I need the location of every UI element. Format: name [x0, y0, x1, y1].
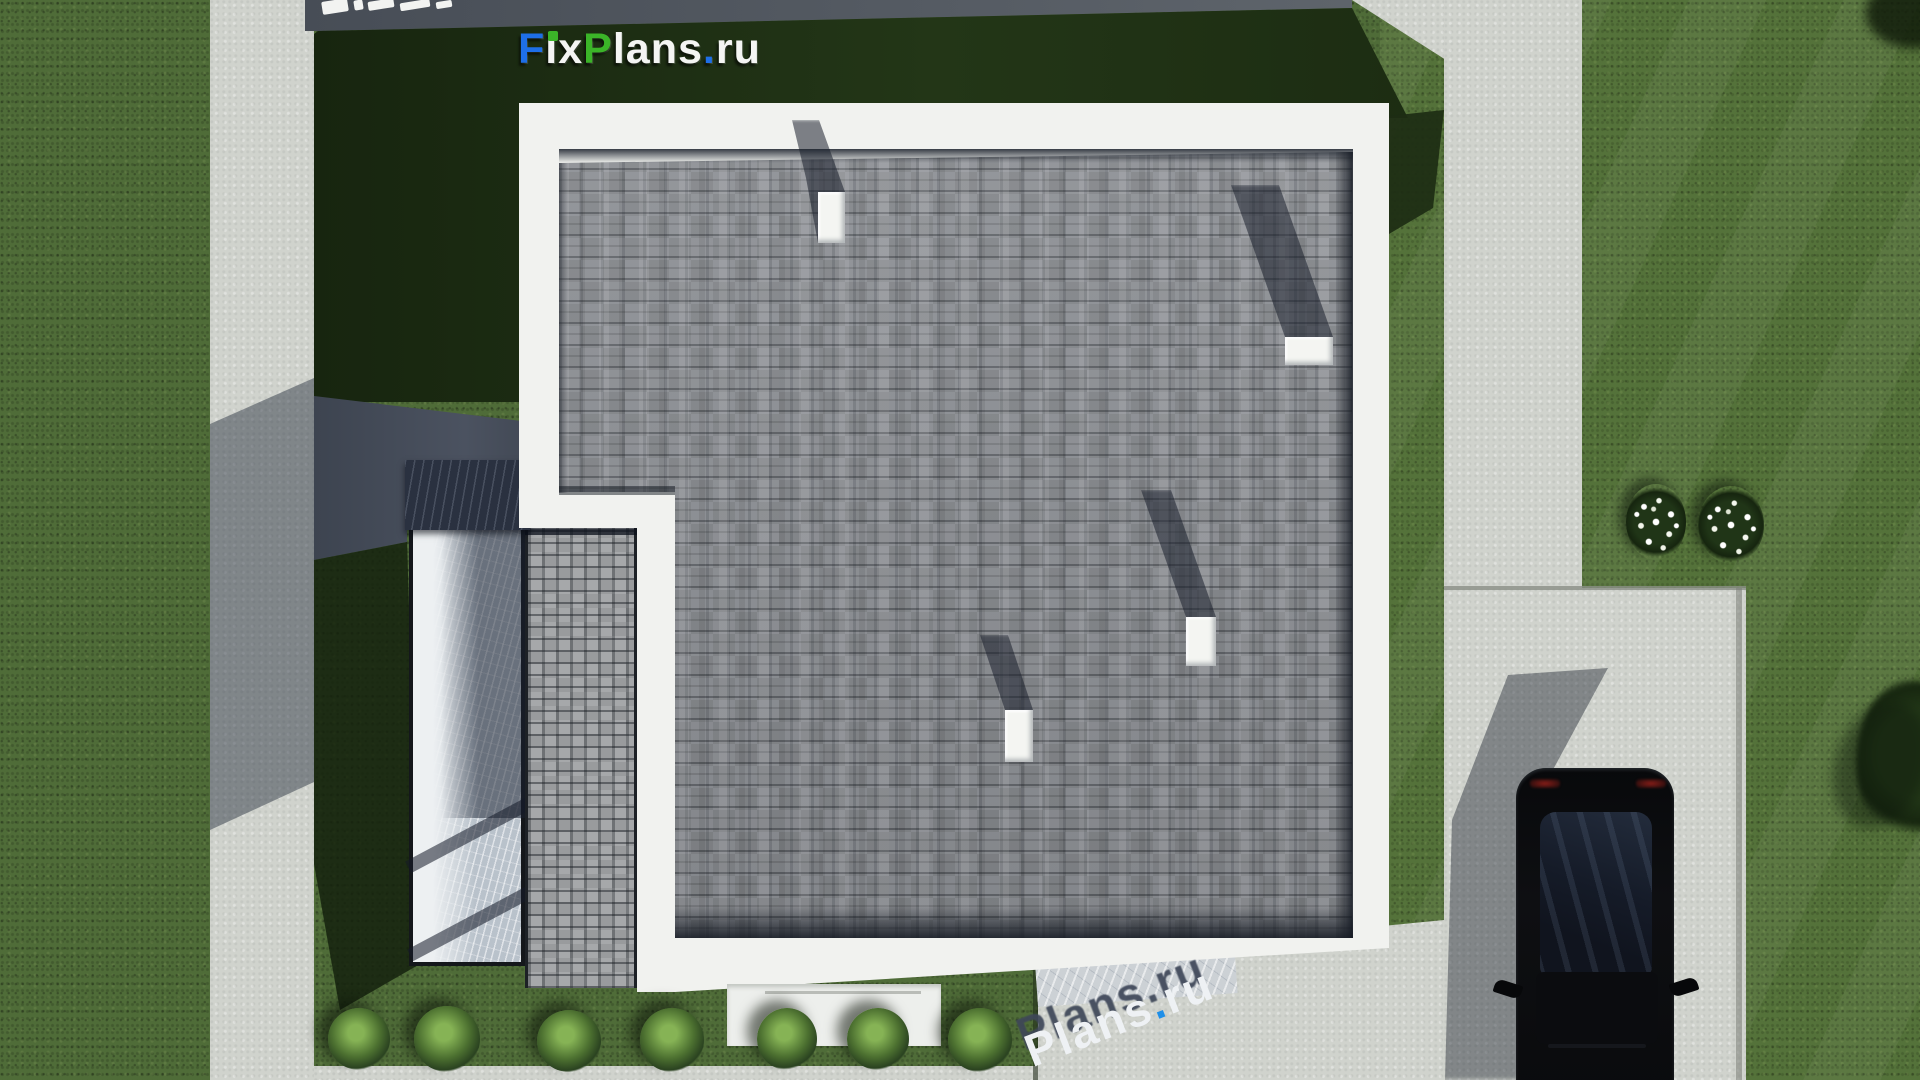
bush-1	[328, 1008, 390, 1070]
render-canvas: Plans.ru Plans.ru FixPlans.ru	[0, 0, 1920, 1080]
terrace-shadow-overlay	[441, 518, 525, 818]
chimney-3	[1005, 710, 1033, 762]
walkway-right	[1444, 0, 1582, 592]
logo-part-ru: ru	[716, 25, 761, 73]
chimney-1	[818, 192, 845, 243]
brand-logo: FixPlans.ru	[518, 28, 761, 71]
bush-2	[414, 1006, 480, 1072]
roof-edge-shadow-right	[1336, 152, 1353, 938]
logo-part-F: F	[518, 25, 545, 73]
roof-shingles	[559, 150, 1353, 940]
roof-edge-shadow-left	[559, 163, 568, 493]
lawn-shadow-wedge	[314, 540, 424, 1015]
logo-part-x: x	[558, 25, 583, 73]
pergola-beam	[405, 460, 530, 530]
car-taillight-left	[1530, 779, 1560, 788]
bush-5	[757, 1008, 817, 1070]
bush-6	[847, 1008, 909, 1070]
path-shadow-overlay	[210, 378, 314, 830]
logo-part-dot: .	[703, 25, 716, 73]
bush-3	[537, 1010, 601, 1072]
roof-edge-shadow-bottom	[675, 906, 1353, 938]
car-taillight-right	[1636, 779, 1666, 788]
logo-part-P: P	[583, 25, 613, 73]
flower-bed-2	[1698, 486, 1764, 564]
car-front-line	[1548, 1044, 1646, 1048]
roof-edge-shadow-step	[559, 486, 675, 495]
logo-i-dot	[548, 31, 558, 41]
car-rear-glass	[1540, 812, 1652, 977]
porch-step-line	[765, 991, 921, 994]
pad-edge-line	[1736, 588, 1742, 1080]
chimney-2	[1285, 337, 1333, 365]
logo-part-lans: lans	[613, 25, 703, 73]
pad-seam-line	[1444, 586, 1746, 590]
bush-4	[640, 1008, 704, 1072]
roof-edge-shadow-top	[559, 149, 1353, 163]
car-roof-trunk	[1536, 972, 1658, 1044]
chimney-4	[1186, 617, 1216, 666]
watermark-bottom: Plans.ru Plans.ru	[1000, 950, 1400, 1080]
flower-bed-1	[1626, 484, 1686, 560]
watermark-top-fragment	[353, 0, 363, 11]
